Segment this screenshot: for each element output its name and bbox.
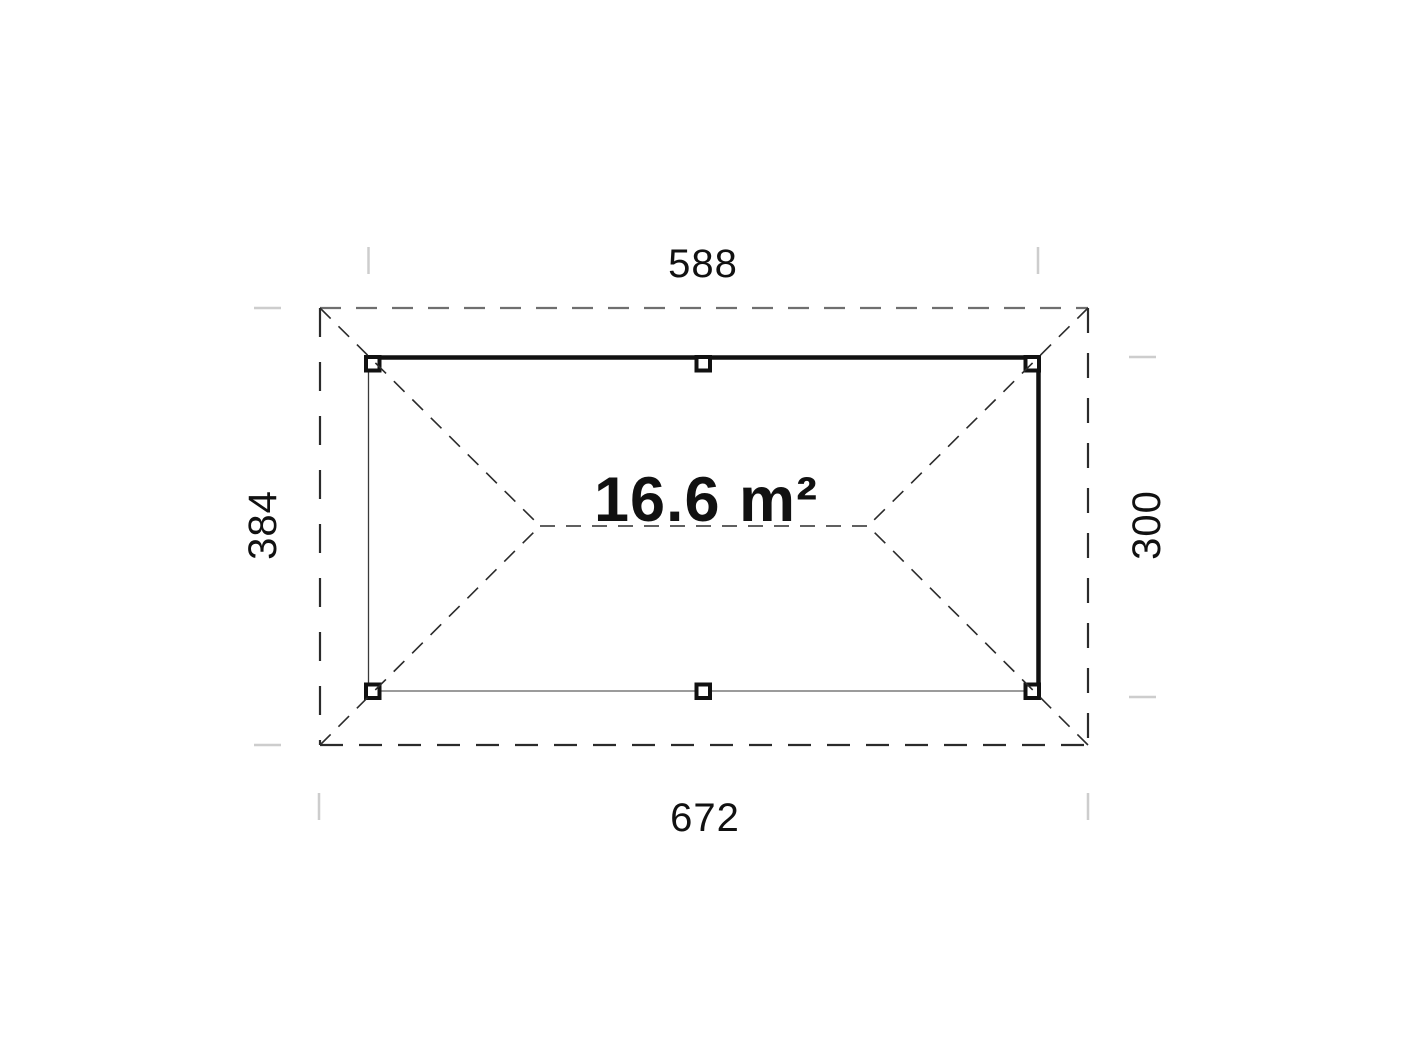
dim-label-bottom: 672 <box>670 796 740 840</box>
post-top-left <box>366 357 380 371</box>
hip-diagonal-top-right <box>868 308 1088 526</box>
post-bottom-middle <box>697 685 711 699</box>
floor-plan-canvas: 588 672 384 300 16.6 m² <box>0 0 1407 1055</box>
hip-diagonal-bottom-right <box>868 526 1088 745</box>
hip-diagonal-bottom-left <box>320 526 540 745</box>
area-label: 16.6 m² <box>594 465 818 535</box>
post-top-middle <box>697 357 711 371</box>
post-bottom-left <box>366 685 380 699</box>
dim-label-left: 384 <box>241 490 285 560</box>
dim-label-right: 300 <box>1125 490 1169 560</box>
roof-plan-drawing: 588 672 384 300 16.6 m² <box>0 0 1407 1055</box>
post-bottom-right <box>1026 685 1040 699</box>
hip-diagonal-top-left <box>320 308 540 526</box>
dim-label-top: 588 <box>668 242 738 286</box>
